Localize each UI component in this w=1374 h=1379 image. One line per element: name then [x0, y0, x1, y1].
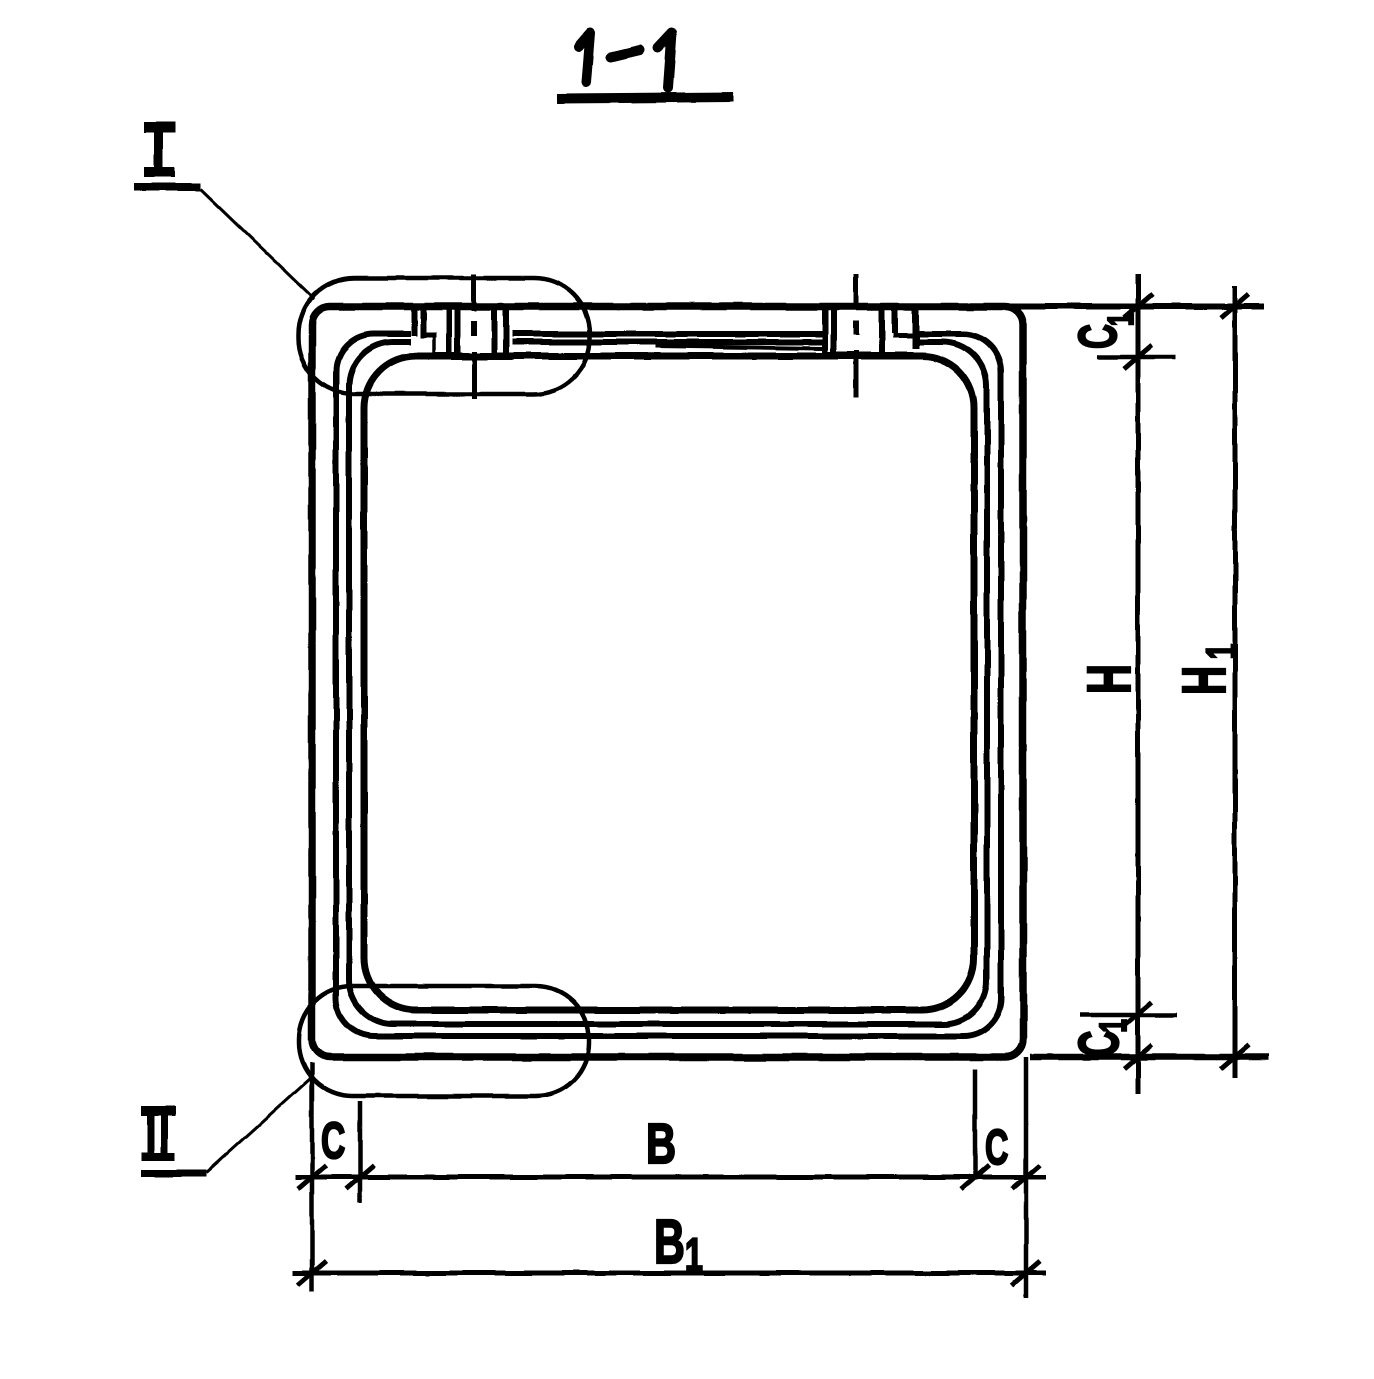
svg-text:B: B: [646, 1112, 676, 1176]
svg-text:C: C: [321, 1113, 345, 1170]
svg-text:C: C: [985, 1119, 1008, 1174]
svg-text:H: H: [1076, 664, 1144, 694]
